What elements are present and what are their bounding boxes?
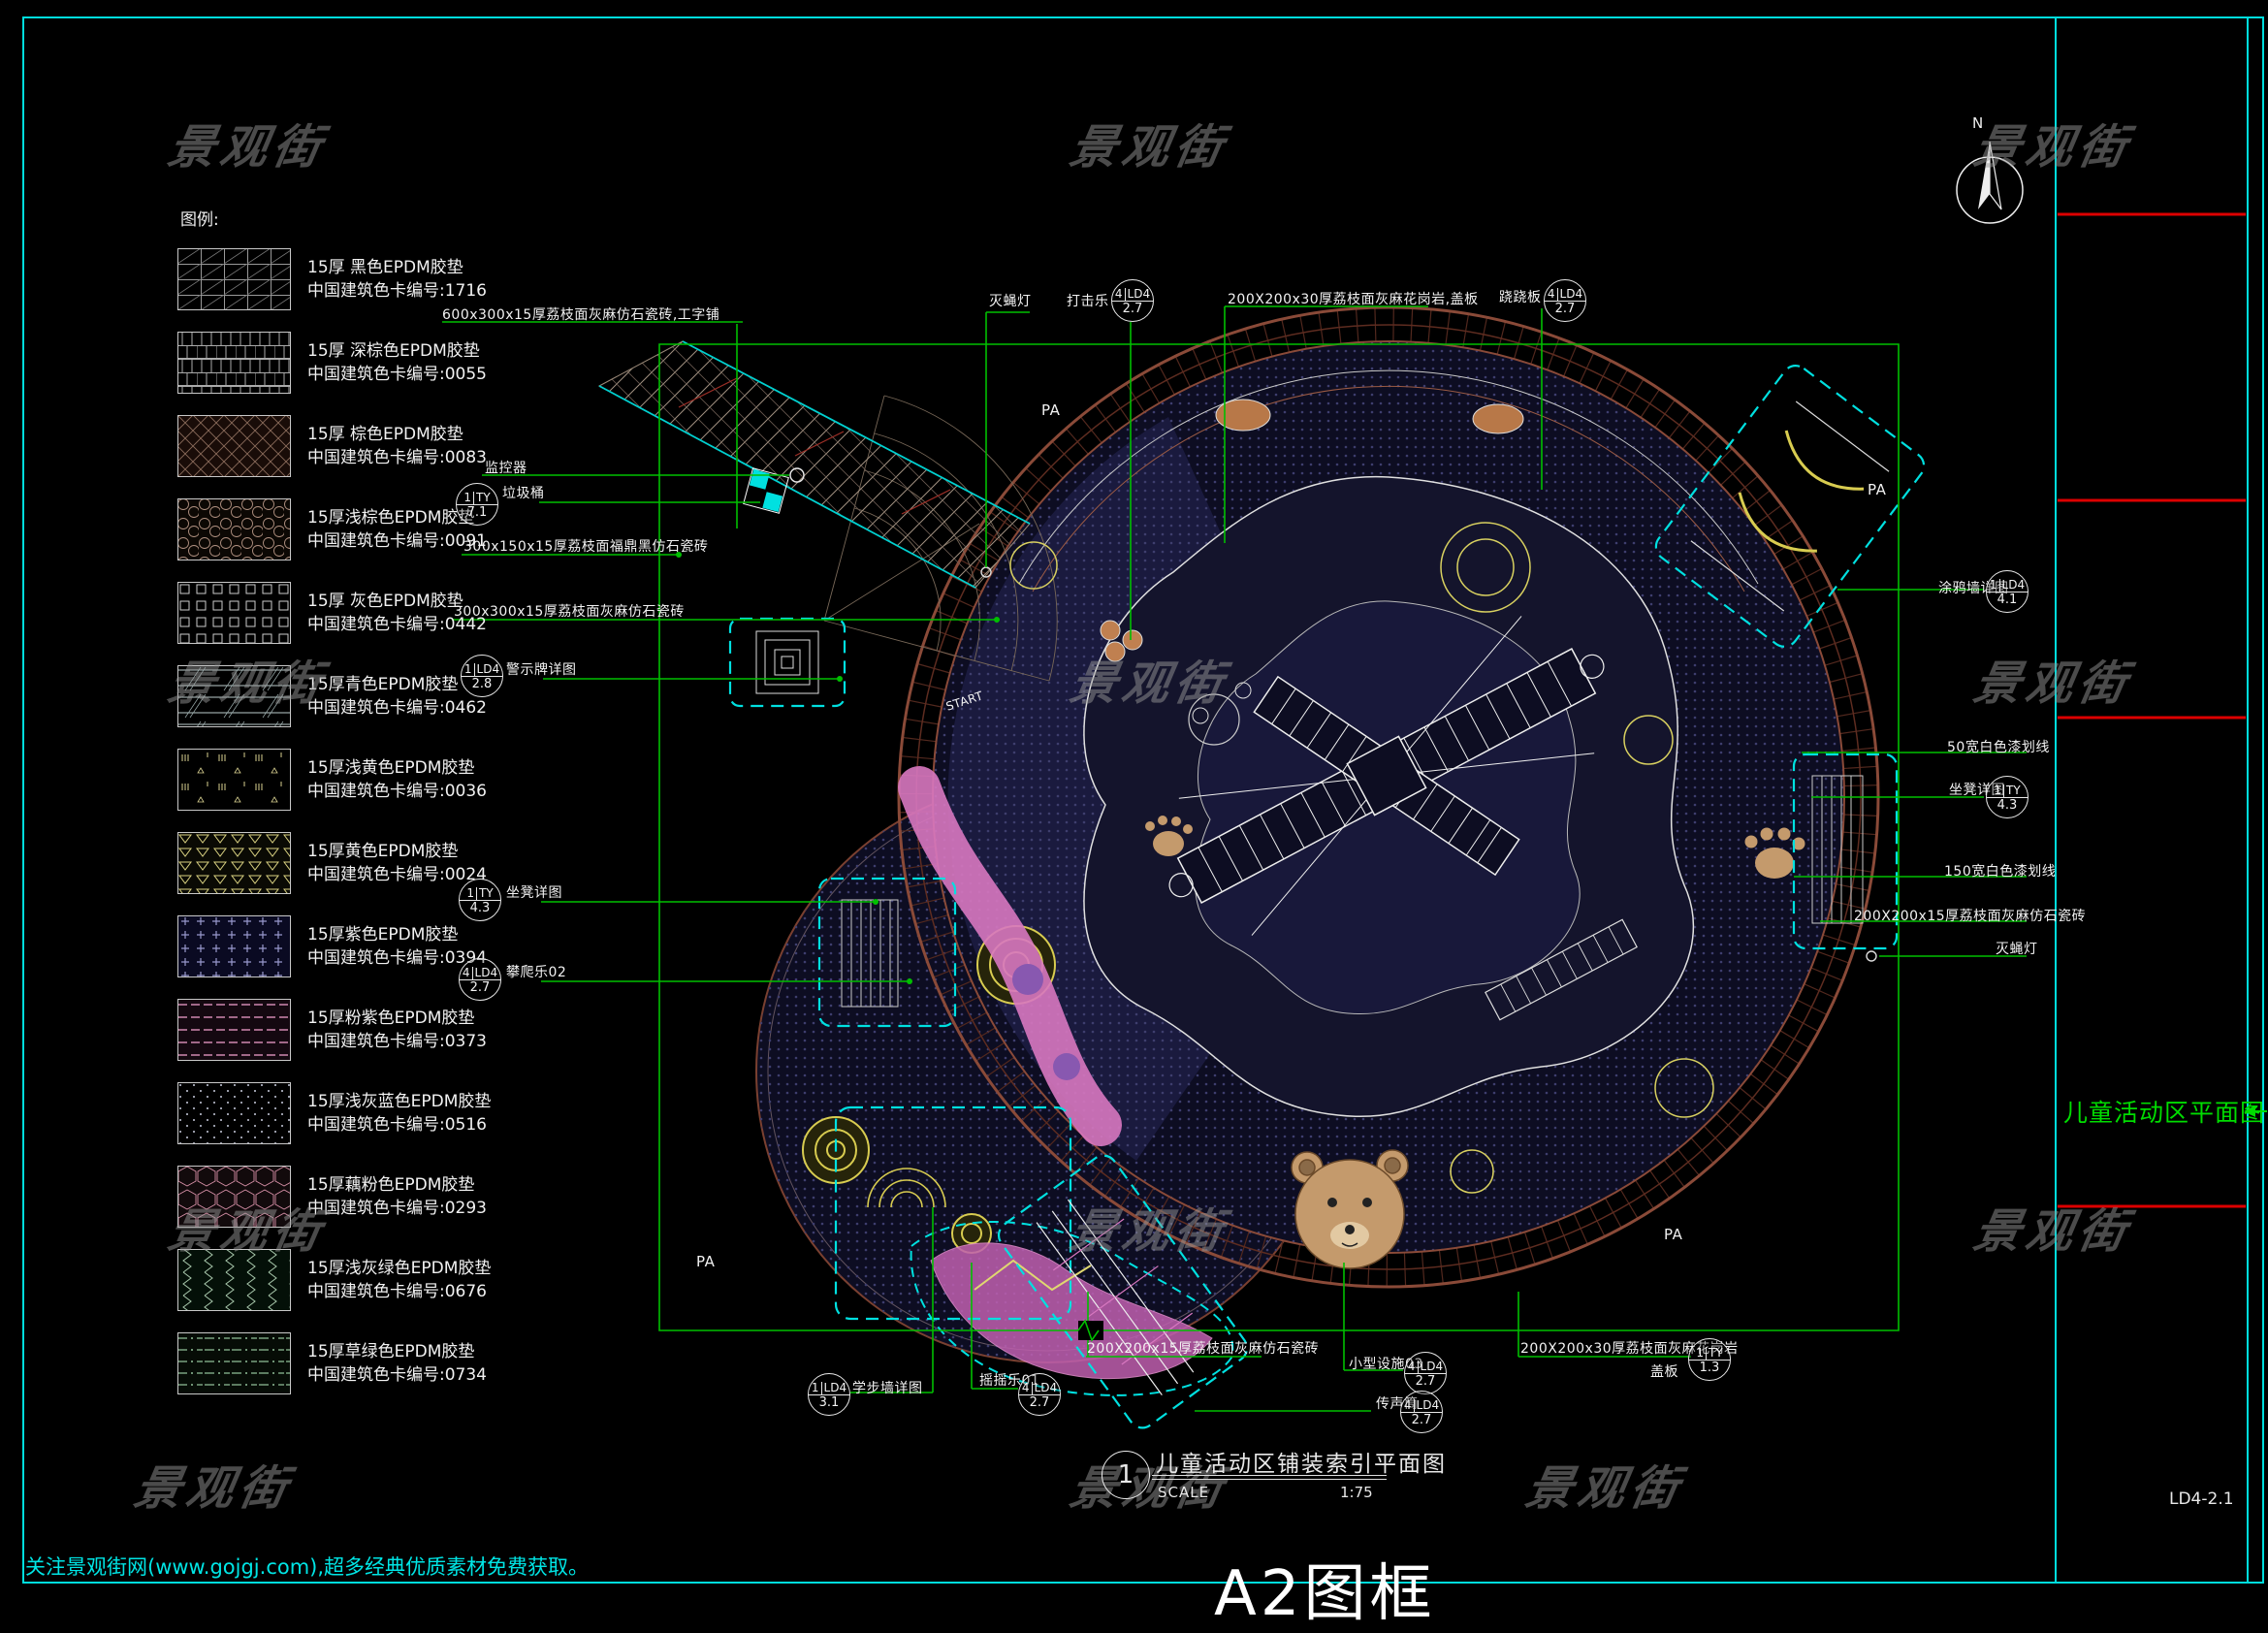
callout-number: 4 [1115,288,1126,301]
legend-swatch [177,1082,291,1148]
legend-material: 15厚草绿色EPDM胶垫 [307,1342,474,1361]
legend-material: 15厚藕粉色EPDM胶垫 [307,1175,474,1195]
annotation-label: 监控器 [485,458,527,477]
detail-callout: 1TY4.3 [1986,776,2028,818]
legend-item: 15厚浅黄色EPDM胶垫 中国建筑色卡编号:0036 [177,749,585,811]
callout-ref: 1.3 [1689,1361,1730,1380]
frame-size-label: A2图框 [1214,1544,1436,1633]
callout-sheet: LD4 [475,967,498,979]
annotation-label: 打击乐 [1067,291,1109,310]
callout-sheet: LD4 [1421,1361,1444,1373]
legend-material: 15厚青色EPDM胶垫 [307,675,458,694]
legend-material: 15厚 深棕色EPDM胶垫 [307,341,480,361]
scale-label: SCALE [1158,1484,1209,1501]
callout-ref: 4.1 [1987,592,2028,612]
legend-item: 15厚 深棕色EPDM胶垫 中国建筑色卡编号:0055 [177,332,585,394]
compass-north-label: N [1972,114,1983,132]
callout-sheet: LD4 [477,663,500,676]
callout-ref: 2.7 [460,980,500,1000]
annotation-label: 200X200x30厚荔枝面灰麻花岗岩,盖板 [1228,289,1479,308]
legend-item: 15厚粉紫色EPDM胶垫 中国建筑色卡编号:0373 [177,999,585,1061]
callout-number: 4 [1408,1361,1419,1373]
legend-color-code: 中国建筑色卡编号:0293 [307,1199,487,1218]
legend-material: 15厚紫色EPDM胶垫 [307,925,458,945]
callout-number: 4 [1404,1399,1415,1412]
callout-ref: 4.3 [1987,798,2028,817]
detail-callout: 1LD42.8 [461,655,503,697]
legend-material: 15厚黄色EPDM胶垫 [307,842,458,861]
annotation-label: PA [1664,1226,1682,1243]
callout-sheet: LD4 [2002,579,2026,592]
callout-ref: 2.8 [462,677,502,696]
callout-number: 4 [463,967,473,979]
watermark: 景观街 [164,1193,333,1261]
legend-swatch [177,248,291,314]
callout-number: 1 [463,492,474,504]
cad-sheet: { "colors":{"accent_green":"#00bf00","fr… [0,0,2268,1604]
detail-callout: 4LD42.7 [1111,279,1154,322]
detail-callout: 1TY4.3 [459,879,501,921]
annotation-label: 150宽白色漆划线 [1944,861,2056,881]
callout-number: 1 [1994,784,2004,797]
legend-title: 图例: [180,206,219,230]
callout-sheet: LD4 [1128,288,1151,301]
legend-swatch [177,582,291,648]
legend-material: 15厚浅棕色EPDM胶垫 [307,508,474,528]
sheet-number: LD4-2.1 [2169,1489,2234,1509]
legend-color-code: 中国建筑色卡编号:0373 [307,1032,487,1051]
annotation-label: 600x300x15厚荔枝面灰麻仿石瓷砖,工字铺 [442,304,719,324]
watermark: 景观街 [1969,1193,2138,1261]
callout-ref: 7.1 [457,505,497,525]
callout-ref: 2.7 [1019,1395,1060,1415]
title-underline [1152,1475,1387,1480]
detail-callout: 1TY1.3 [1688,1338,1731,1381]
scale-value: 1:75 [1340,1484,1373,1501]
annotation-label: PA [1041,401,1060,419]
legend-item: 15厚草绿色EPDM胶垫 中国建筑色卡编号:0734 [177,1332,585,1394]
callout-number: 1 [466,887,477,900]
legend-color-code: 中国建筑色卡编号:0083 [307,448,487,467]
callout-sheet: TY [479,887,494,900]
annotation-label: 灭蝇灯 [989,291,1032,310]
callout-number: 1 [464,663,475,676]
legend-color-code: 中国建筑色卡编号:0516 [307,1115,487,1135]
callout-ref: 2.7 [1401,1413,1442,1432]
legend-material: 15厚 黑色EPDM胶垫 [307,258,463,277]
callout-ref: 2.7 [1112,302,1153,321]
legend-color-code: 中国建筑色卡编号:0036 [307,782,487,801]
legend-swatch [177,915,291,981]
detail-callout: 4LD42.7 [1544,279,1586,322]
watermark: 景观街 [164,645,333,713]
legend-color-code: 中国建筑色卡编号:0734 [307,1365,487,1385]
annotation-label: 灭蝇灯 [1996,939,2038,958]
annotation-label: 200X200x15厚荔枝面灰麻仿石瓷砖 [1854,906,2086,925]
legend-swatch [177,749,291,815]
annotation-label: 学步墙详图 [852,1378,923,1397]
footer-promo-text: 关注景观街网(www.gojgj.com),超多经典优质素材免费获取。 [25,1552,589,1581]
annotation-label: PA [696,1253,715,1270]
callout-number: 1 [1990,579,2000,592]
legend-swatch [177,415,291,481]
legend-color-code: 中国建筑色卡编号:0462 [307,698,487,718]
legend-material: 15厚 棕色EPDM胶垫 [307,425,463,444]
annotation-label: 坐凳详图 [506,882,562,902]
detail-callout: 4LD42.7 [1400,1391,1443,1433]
annotation-label: 盖板 [1650,1361,1678,1381]
detail-callout: 1LD44.1 [1986,570,2028,613]
callout-number: 4 [1022,1382,1033,1394]
annotation-label: 200X200x15厚荔枝面灰麻仿石瓷砖 [1087,1338,1319,1358]
detail-callout: 1LD43.1 [808,1373,850,1416]
legend-color-code: 中国建筑色卡编号:0091 [307,531,487,551]
callout-number: 1 [812,1382,822,1394]
watermark: 景观街 [1521,1450,1690,1518]
annotation-label: 攀爬乐02 [506,962,566,981]
annotation-label: 300x300x15厚荔枝面灰麻仿石瓷砖 [454,601,685,621]
annotation-label: 跷跷板 [1499,287,1542,306]
legend-material: 15厚粉紫色EPDM胶垫 [307,1009,474,1028]
watermark: 景观街 [1066,109,1234,176]
detail-callout: 4LD42.7 [1018,1373,1061,1416]
annotation-label: PA [1868,481,1886,498]
callout-sheet: LD4 [1560,288,1583,301]
annotation-label: 垃圾桶 [502,483,545,502]
watermark: 景观街 [130,1450,299,1518]
sheet-strip-title: 儿童活动区平面图 [2063,1094,2265,1129]
callout-sheet: TY [1709,1347,1723,1360]
callout-ref: 2.7 [1545,302,1585,321]
annotation-label: 警示牌详图 [506,659,577,679]
annotation-label: 300x150x15厚荔枝面福鼎黑仿石瓷砖 [463,536,708,556]
callout-sheet: LD4 [1417,1399,1440,1412]
callout-sheet: TY [476,492,491,504]
callout-sheet: LD4 [1035,1382,1058,1394]
annotation-label: 50宽白色漆划线 [1947,737,2050,756]
callout-number: 1 [1696,1347,1707,1360]
legend-material: 15厚浅黄色EPDM胶垫 [307,758,474,778]
drawing-index-badge: 1 [1102,1451,1150,1499]
detail-callout: 4LD42.7 [459,958,501,1001]
legend-color-code: 中国建筑色卡编号:0055 [307,365,487,384]
callout-ref: 3.1 [809,1395,849,1415]
legend-swatch [177,1332,291,1398]
legend-color-code: 中国建筑色卡编号:1716 [307,281,487,301]
detail-callout: 4LD42.7 [1404,1352,1447,1394]
legend-item: 15厚 黑色EPDM胶垫 中国建筑色卡编号:1716 [177,248,585,310]
legend-swatch [177,999,291,1065]
callout-sheet: LD4 [824,1382,847,1394]
watermark: 景观街 [1969,645,2138,713]
watermark: 景观街 [164,109,333,176]
legend-material: 15厚 灰色EPDM胶垫 [307,592,463,611]
legend-swatch [177,498,291,564]
legend-color-code: 中国建筑色卡编号:0676 [307,1282,487,1301]
watermark: 景观街 [1969,109,2138,176]
legend-item: 15厚浅灰蓝色EPDM胶垫 中国建筑色卡编号:0516 [177,1082,585,1144]
legend-material: 15厚浅灰蓝色EPDM胶垫 [307,1092,491,1111]
watermark: 景观街 [1066,645,1234,713]
detail-callout: 1TY7.1 [456,483,498,526]
legend-swatch [177,332,291,398]
watermark: 景观街 [1066,1193,1234,1261]
callout-sheet: TY [2006,784,2021,797]
legend-swatch [177,832,291,898]
drawing-title: 儿童活动区铺装索引平面图 [1156,1445,1447,1478]
legend-material: 15厚浅灰绿色EPDM胶垫 [307,1259,491,1278]
callout-number: 4 [1548,288,1558,301]
callout-ref: 4.3 [460,901,500,920]
